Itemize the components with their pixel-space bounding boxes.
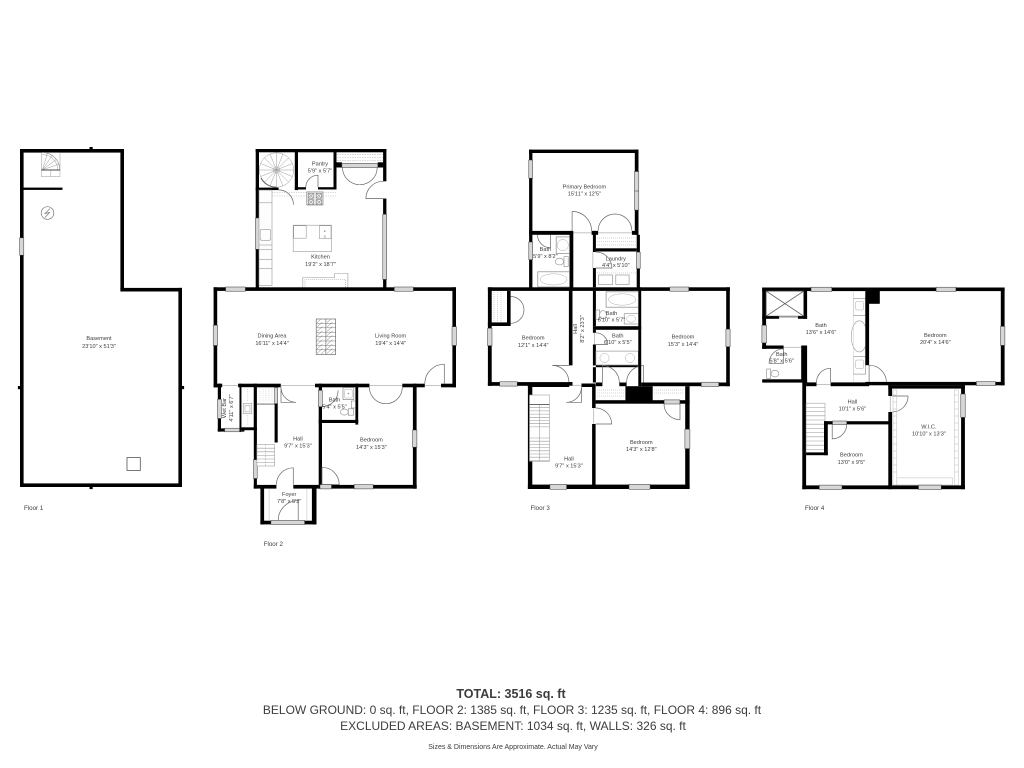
svg-text:19'2" x 18'7": 19'2" x 18'7" <box>305 262 336 268</box>
svg-text:Laundry: Laundry <box>606 257 626 263</box>
svg-text:23'10" x 51'3": 23'10" x 51'3" <box>82 344 116 350</box>
svg-text:6'10" x 5'7": 6'10" x 5'7" <box>598 318 626 324</box>
svg-text:5'4" x 5'5": 5'4" x 5'5" <box>322 405 346 411</box>
svg-text:Hall: Hall <box>848 399 858 405</box>
svg-text:Bedroom: Bedroom <box>924 333 947 339</box>
svg-text:Bath: Bath <box>612 333 624 339</box>
svg-text:Bath: Bath <box>815 323 827 329</box>
svg-text:Kitchen: Kitchen <box>311 255 330 261</box>
svg-text:13'0" x 9'5": 13'0" x 9'5" <box>838 460 866 466</box>
svg-text:Dining Area: Dining Area <box>258 334 288 340</box>
svg-text:Bath: Bath <box>329 398 341 404</box>
svg-text:Basement: Basement <box>86 336 112 342</box>
svg-text:Bedroom: Bedroom <box>630 440 653 446</box>
svg-text:TOTAL: 3516 sq. ft: TOTAL: 3516 sq. ft <box>456 687 566 701</box>
svg-text:Hall: Hall <box>293 437 303 443</box>
svg-text:Sizes & Dimensions Are Approxi: Sizes & Dimensions Are Approximate. Actu… <box>428 744 598 751</box>
svg-text:16'11" x 14'4": 16'11" x 14'4" <box>255 341 288 347</box>
svg-text:BELOW GROUND: 0 sq. ft, FLOOR: BELOW GROUND: 0 sq. ft, FLOOR 2: 1385 sq… <box>263 703 762 717</box>
svg-text:12'1" x 14'4": 12'1" x 14'4" <box>518 343 549 349</box>
svg-text:W.I.C.: W.I.C. <box>921 425 937 431</box>
svg-text:19'4" x 14'4": 19'4" x 14'4" <box>375 341 406 347</box>
svg-text:14'3" x 15'3": 14'3" x 15'3" <box>356 445 387 451</box>
svg-text:15'3" x 14'4": 15'3" x 14'4" <box>668 342 699 348</box>
svg-text:13'6" x 14'6": 13'6" x 14'6" <box>806 330 837 336</box>
svg-text:Bedroom: Bedroom <box>360 438 383 444</box>
svg-text:8'2" x 23'3": 8'2" x 23'3" <box>580 315 586 343</box>
svg-text:Bath: Bath <box>776 352 788 358</box>
svg-text:Bath: Bath <box>540 247 552 253</box>
svg-text:Wet Bar: Wet Bar <box>222 398 228 418</box>
svg-text:Hall: Hall <box>564 457 574 463</box>
svg-text:10'10" x 13'3": 10'10" x 13'3" <box>912 432 946 438</box>
svg-text:Floor 4: Floor 4 <box>805 505 825 512</box>
svg-text:6'10" x 5'5": 6'10" x 5'5" <box>604 340 632 346</box>
svg-text:Floor 1: Floor 1 <box>24 505 44 512</box>
svg-text:Floor 3: Floor 3 <box>531 505 551 512</box>
svg-text:20'4" x 14'6": 20'4" x 14'6" <box>920 340 951 346</box>
svg-text:Primary Bedroom: Primary Bedroom <box>563 184 607 190</box>
svg-text:Bedroom: Bedroom <box>522 336 545 342</box>
svg-text:10'1" x 5'6": 10'1" x 5'6" <box>839 406 867 412</box>
svg-text:7'8" x 5'2": 7'8" x 5'2" <box>277 499 301 505</box>
svg-text:9'7" x 15'3": 9'7" x 15'3" <box>555 464 583 470</box>
svg-text:Bedroom: Bedroom <box>840 453 863 459</box>
svg-text:5'8" x 5'6": 5'8" x 5'6" <box>769 359 793 365</box>
svg-text:14'3" x 12'8": 14'3" x 12'8" <box>626 447 657 453</box>
svg-text:Hall: Hall <box>573 324 579 334</box>
svg-text:Bedroom: Bedroom <box>672 335 695 341</box>
svg-text:5'9" x 5'7": 5'9" x 5'7" <box>308 169 332 175</box>
svg-text:Pantry: Pantry <box>312 162 328 168</box>
svg-text:Foyer: Foyer <box>282 492 296 498</box>
svg-text:4'4" x 5'10": 4'4" x 5'10" <box>602 263 630 269</box>
svg-text:Bath: Bath <box>606 311 618 317</box>
svg-text:9'7" x 15'3": 9'7" x 15'3" <box>284 444 312 450</box>
svg-text:4'11" x 6'7": 4'11" x 6'7" <box>229 394 235 421</box>
svg-text:EXCLUDED AREAS: BASEMENT: 1034: EXCLUDED AREAS: BASEMENT: 1034 sq. ft, W… <box>340 719 686 733</box>
svg-text:Living Room: Living Room <box>375 334 406 340</box>
svg-text:15'11" x 12'5": 15'11" x 12'5" <box>568 192 601 198</box>
svg-text:5'9" x 8'2": 5'9" x 8'2" <box>533 254 557 260</box>
svg-text:Floor 2: Floor 2 <box>264 541 284 548</box>
